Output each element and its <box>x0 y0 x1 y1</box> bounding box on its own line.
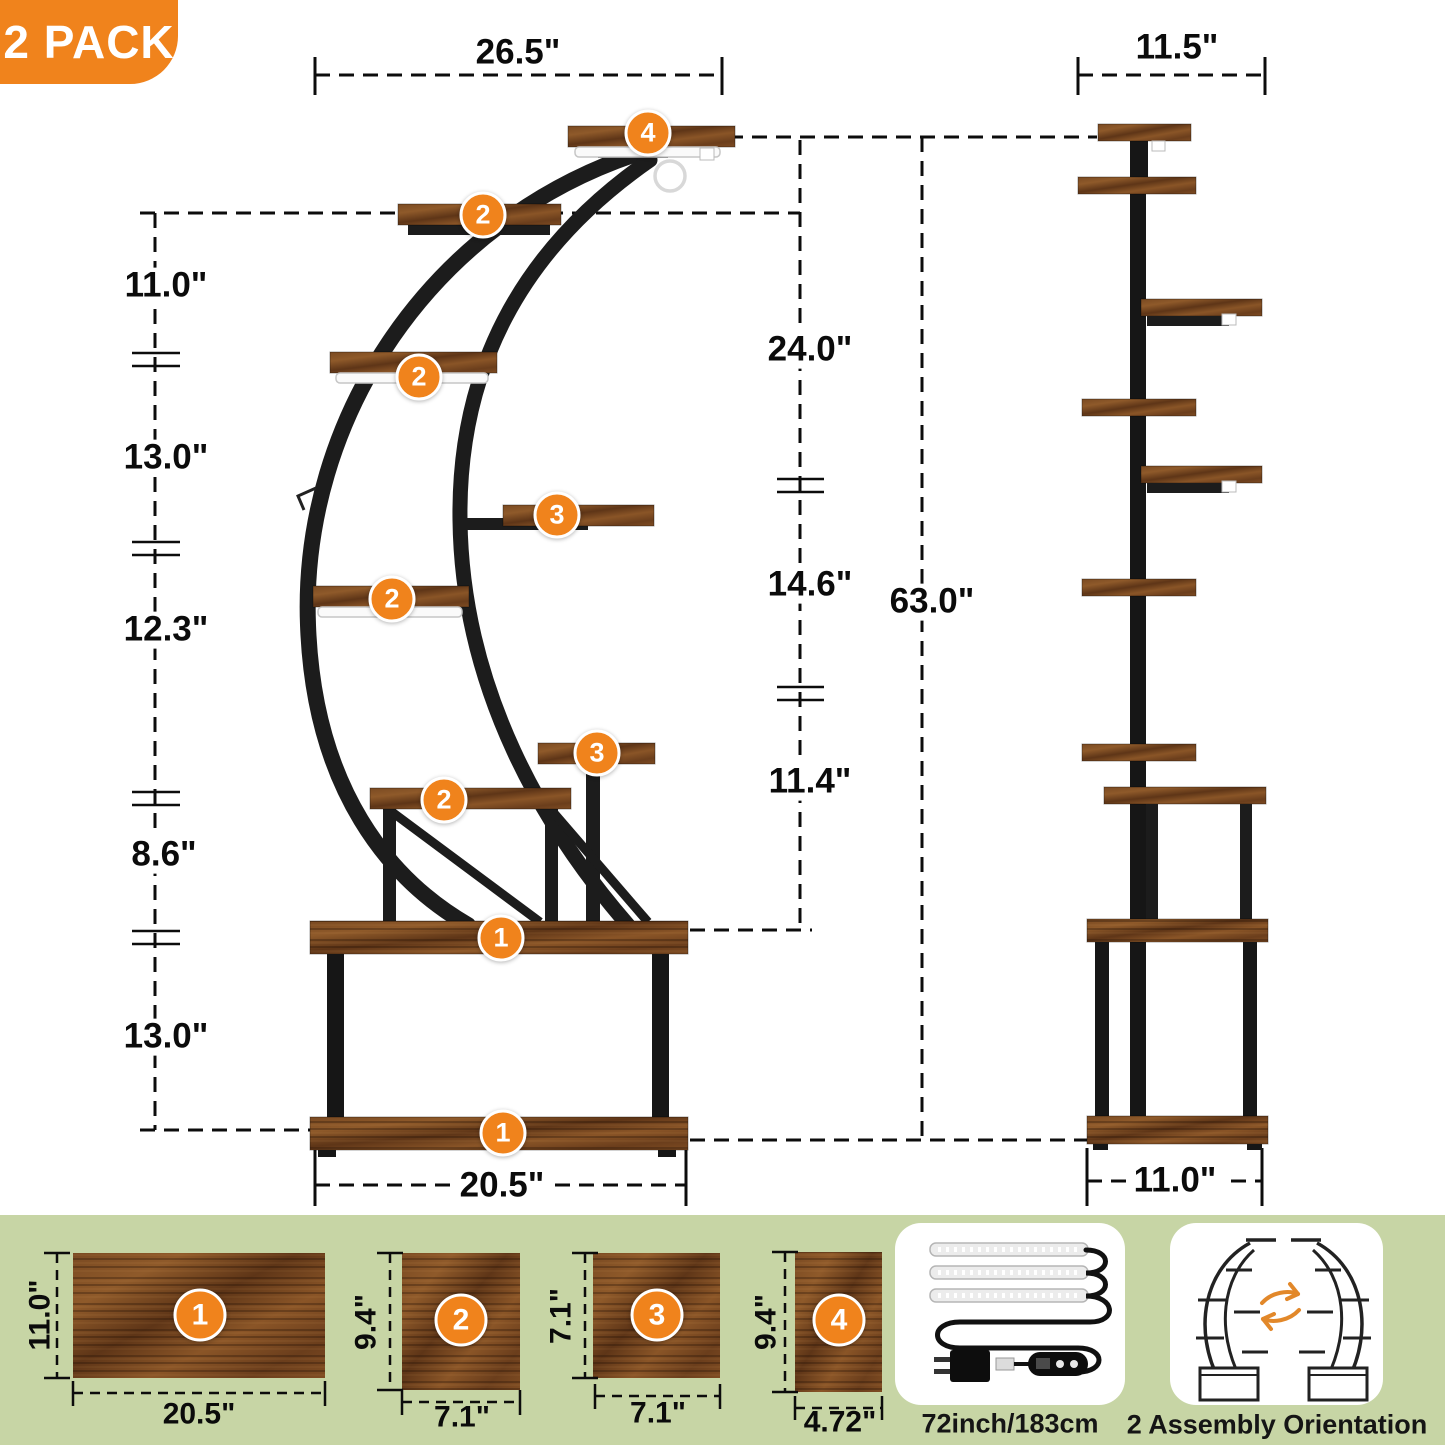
shelf-badge-3-b: 3 <box>574 730 621 777</box>
panel-2-depth-label: 9.4" <box>350 1288 382 1356</box>
panel-2-width-label: 7.1" <box>428 1401 496 1433</box>
panel-1-badge: 1 <box>174 1289 227 1342</box>
panel-3-depth-label: 7.1" <box>545 1282 577 1350</box>
front-left-dim-3: 12.3" <box>118 612 215 649</box>
front-left-dim-4: 8.6" <box>125 837 202 874</box>
front-top-width-label: 26.5" <box>470 35 567 72</box>
labels-layer: 2 PACK 26.5" 11.0" 13.0" 12.3" 8.6" 13.0… <box>0 0 1445 1445</box>
side-base-width-label: 11.0" <box>1128 1163 1223 1200</box>
front-right-dim-2: 14.6" <box>762 567 859 604</box>
side-top-width-label: 11.5" <box>1130 30 1225 67</box>
panel-1-width-label: 20.5" <box>157 1398 242 1430</box>
panel-3-badge: 3 <box>631 1289 684 1342</box>
front-right-dim-1: 24.0" <box>762 332 859 369</box>
panel-4-badge: 4 <box>813 1294 866 1347</box>
panel-4-depth-label: 9.4" <box>750 1288 782 1356</box>
front-left-dim-5: 13.0" <box>118 1019 215 1056</box>
shelf-badge-2-b: 2 <box>396 354 443 401</box>
shelf-badge-2-a: 2 <box>460 192 507 239</box>
panel-3-width-label: 7.1" <box>624 1397 692 1429</box>
front-right-dim-3: 11.4" <box>763 764 858 801</box>
front-base-width-label: 20.5" <box>454 1168 551 1205</box>
shelf-badge-1-top: 1 <box>478 915 525 962</box>
shelf-badge-2-d: 2 <box>421 777 468 824</box>
front-left-dim-1: 11.0" <box>119 268 214 305</box>
panel-1-depth-label: 11.0" <box>24 1274 56 1357</box>
pack-badge: 2 PACK <box>0 0 178 84</box>
shelf-badge-1-bottom: 1 <box>480 1110 527 1157</box>
assembly-caption: 2 Assembly Orientation <box>1127 1410 1428 1441</box>
shelf-badge-3-a: 3 <box>534 492 581 539</box>
product-dimension-diagram: 2 PACK 26.5" 11.0" 13.0" 12.3" 8.6" 13.0… <box>0 0 1445 1445</box>
front-left-dim-2: 13.0" <box>118 440 215 477</box>
panel-4-width-label: 4.72" <box>798 1406 883 1438</box>
total-height-label: 63.0" <box>884 584 981 621</box>
shelf-badge-2-c: 2 <box>369 576 416 623</box>
led-kit-caption: 72inch/183cm <box>921 1409 1098 1440</box>
shelf-badge-4-top: 4 <box>625 110 672 157</box>
panel-2-badge: 2 <box>435 1294 488 1347</box>
